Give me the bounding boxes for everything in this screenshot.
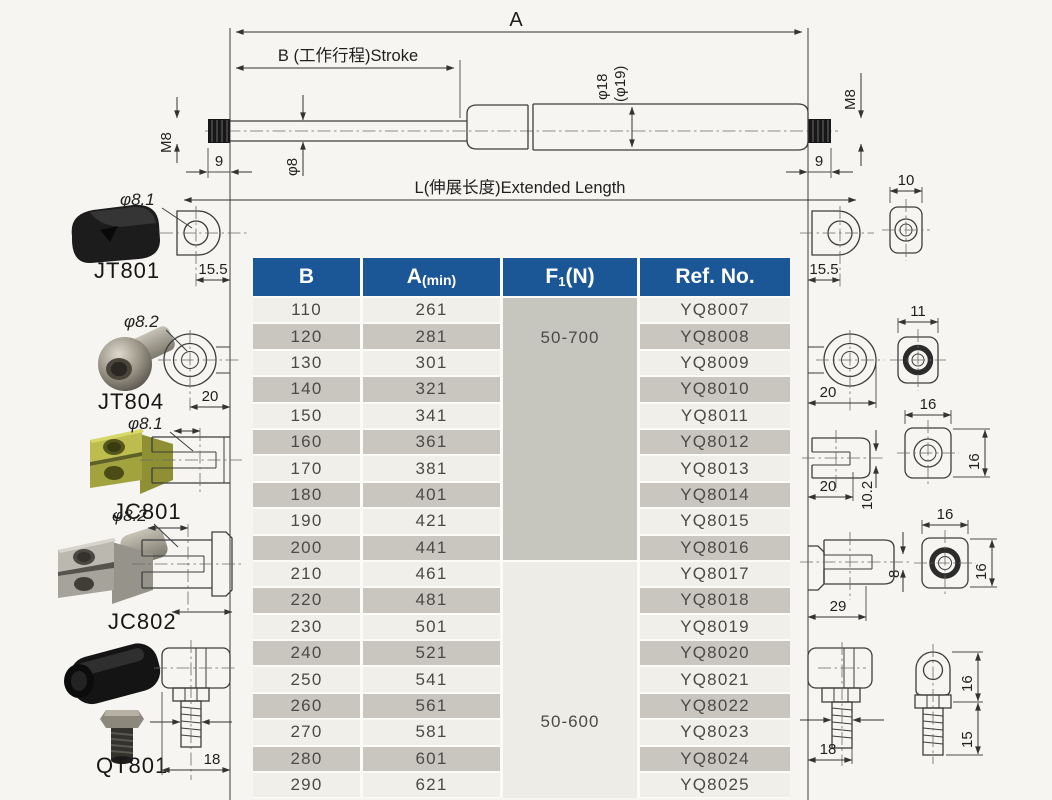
dim-overall-length: A: [509, 9, 523, 31]
cell-stroke-b: 240: [253, 641, 360, 665]
dim-stroke: B (工作行程)Stroke: [278, 46, 418, 65]
cell-a-min: 541: [363, 667, 500, 691]
cell-a-min: 301: [363, 351, 500, 375]
cell-stroke-b: 220: [253, 588, 360, 612]
col-header-ref: Ref. No.: [640, 258, 790, 296]
cell-stroke-b: 210: [253, 562, 360, 586]
cell-stroke-b: 200: [253, 536, 360, 560]
cell-a-min: 261: [363, 298, 500, 322]
qt801-photo: [64, 639, 165, 764]
cell-stroke-b: 250: [253, 667, 360, 691]
cell-a-min: 601: [363, 747, 500, 771]
cell-ref-no: YQ8015: [640, 509, 790, 533]
dim-clevis2-front-height: 16: [973, 563, 990, 580]
cell-ref-no: YQ8013: [640, 456, 790, 480]
cell-stroke-b: 160: [253, 430, 360, 454]
cell-a-min: 501: [363, 615, 500, 639]
cell-ref-no: YQ8012: [640, 430, 790, 454]
cell-ref-no: YQ8025: [640, 773, 790, 797]
dim-balljoint-stud: 18: [820, 741, 837, 758]
cell-ref-no: YQ8024: [640, 747, 790, 771]
dim-clevis1-front-width: 16: [920, 396, 937, 413]
jc802-callout: φ8.2: [112, 506, 147, 525]
cell-stroke-b: 150: [253, 404, 360, 428]
cell-ref-no: YQ8017: [640, 562, 790, 586]
cell-a-min: 441: [363, 536, 500, 560]
cell-ref-no: YQ8020: [640, 641, 790, 665]
jt801-photo: [72, 205, 160, 263]
right-balljoint-drawing: 18 16 15: [800, 642, 983, 766]
cell-a-min: 521: [363, 641, 500, 665]
cell-a-min: 621: [363, 773, 500, 797]
cell-stroke-b: 180: [253, 483, 360, 507]
cell-stroke-b: 290: [253, 773, 360, 797]
jc802-label: JC802: [108, 609, 177, 634]
cell-ref-no: YQ8008: [640, 324, 790, 348]
dim-rod-diameter: φ8: [284, 158, 301, 176]
col-header-b: B: [253, 258, 360, 296]
gas-spring-drawing: A B (工作行程)Stroke: [158, 9, 930, 288]
gas-spring-datasheet: A B (工作行程)Stroke: [0, 0, 1052, 800]
cell-a-min: 421: [363, 509, 500, 533]
dim-thread-length-right: 9: [815, 153, 823, 170]
cell-ref-no: YQ8021: [640, 667, 790, 691]
table-body: 50-700 50-600 110 261 YQ8007 120 281 YQ8…: [253, 298, 790, 798]
cell-stroke-b: 120: [253, 324, 360, 348]
dim-tube-diameter: φ18: [594, 74, 611, 100]
jc802-photo: [58, 524, 170, 604]
spec-table: B A(min) F1(N) Ref. No. 50-700 50-600 11…: [253, 258, 790, 798]
dim-thread-right: M8: [842, 89, 859, 110]
jt801-callout: φ8.1: [120, 190, 155, 209]
cell-stroke-b: 190: [253, 509, 360, 533]
table-header-row: B A(min) F1(N) Ref. No.: [253, 258, 790, 296]
force-range-block-2: 50-600: [503, 562, 637, 798]
left-eyelet-drawing: 15.5: [160, 206, 248, 288]
dim-eyelet-offset-left: 15.5: [198, 261, 227, 278]
cell-a-min: 361: [363, 430, 500, 454]
cell-stroke-b: 140: [253, 377, 360, 401]
right-clevis1-drawing: 20 10.2 16 16: [802, 396, 990, 510]
force-range-label-2: 50-600: [541, 712, 600, 798]
jt801-label: JT801: [94, 258, 160, 283]
cell-stroke-b: 170: [253, 456, 360, 480]
cell-a-min: 321: [363, 377, 500, 401]
left-thread: [208, 119, 230, 143]
cell-ref-no: YQ8023: [640, 720, 790, 744]
dim-clevis2-front-width: 16: [937, 506, 954, 523]
cell-ref-no: YQ8022: [640, 694, 790, 718]
cell-ref-no: YQ8009: [640, 351, 790, 375]
jt804-drawing: 20: [158, 330, 242, 414]
jt804-callout: φ8.2: [124, 312, 159, 331]
cell-a-min: 581: [363, 720, 500, 744]
dim-clevis2-length: 29: [830, 598, 847, 615]
force-range-label-1: 50-700: [541, 328, 600, 560]
dim-jt804-offset: 20: [202, 388, 219, 405]
cell-ref-no: YQ8018: [640, 588, 790, 612]
cell-a-min: 561: [363, 694, 500, 718]
dim-thread-left: M8: [158, 132, 175, 153]
jt804-photo: [98, 324, 177, 391]
cell-stroke-b: 260: [253, 694, 360, 718]
cell-stroke-b: 270: [253, 720, 360, 744]
dim-ball-offset: 20: [820, 384, 837, 401]
dim-ball-front-width: 11: [910, 303, 926, 320]
dim-eyelet-offset-right: 15.5: [809, 261, 838, 278]
right-eyelet-drawing: 15.5: [800, 206, 874, 288]
force-range-block-1: 50-700: [503, 298, 637, 560]
jc801-callout: φ8.1: [128, 414, 163, 433]
cell-stroke-b: 280: [253, 747, 360, 771]
col-header-f1n: F1(N): [503, 258, 637, 296]
dim-clevis1-front-height: 16: [966, 453, 983, 470]
dim-extended-length: L(伸展长度)Extended Length: [415, 178, 626, 197]
right-clevis2-drawing: 29 8 16 16: [800, 506, 997, 621]
dim-balljoint-h2: 15: [959, 731, 976, 748]
dim-qt801-stud: 18: [204, 751, 221, 768]
cell-stroke-b: 130: [253, 351, 360, 375]
cell-ref-no: YQ8014: [640, 483, 790, 507]
cell-ref-no: YQ8010: [640, 377, 790, 401]
cell-ref-no: YQ8019: [640, 615, 790, 639]
dim-balljoint-h1: 16: [959, 675, 976, 692]
dim-thread-length-left: 9: [215, 153, 223, 170]
cell-a-min: 461: [363, 562, 500, 586]
dim-clevis2-slot: 8: [886, 570, 903, 578]
cell-ref-no: YQ8011: [640, 404, 790, 428]
right-thread: [808, 119, 831, 143]
cell-ref-no: YQ8016: [640, 536, 790, 560]
dim-clevis1-slot: 10.2: [859, 481, 876, 510]
cell-a-min: 281: [363, 324, 500, 348]
cell-stroke-b: 230: [253, 615, 360, 639]
jt804-label: JT804: [98, 389, 164, 414]
cell-stroke-b: 110: [253, 298, 360, 322]
cell-a-min: 401: [363, 483, 500, 507]
dim-eyelet-front-width: 10: [898, 172, 915, 189]
cell-ref-no: YQ8007: [640, 298, 790, 322]
cell-a-min: 341: [363, 404, 500, 428]
cell-a-min: 481: [363, 588, 500, 612]
jc801-photo: [90, 429, 173, 494]
cell-a-min: 381: [363, 456, 500, 480]
dim-clevis1-offset: 20: [820, 478, 837, 495]
qt801-label: QT801: [96, 753, 168, 778]
dim-tube-diameter-alt: (φ19): [612, 66, 629, 102]
right-eyelet-front-view: 10: [882, 172, 930, 261]
col-header-a-min: A(min): [363, 258, 500, 296]
